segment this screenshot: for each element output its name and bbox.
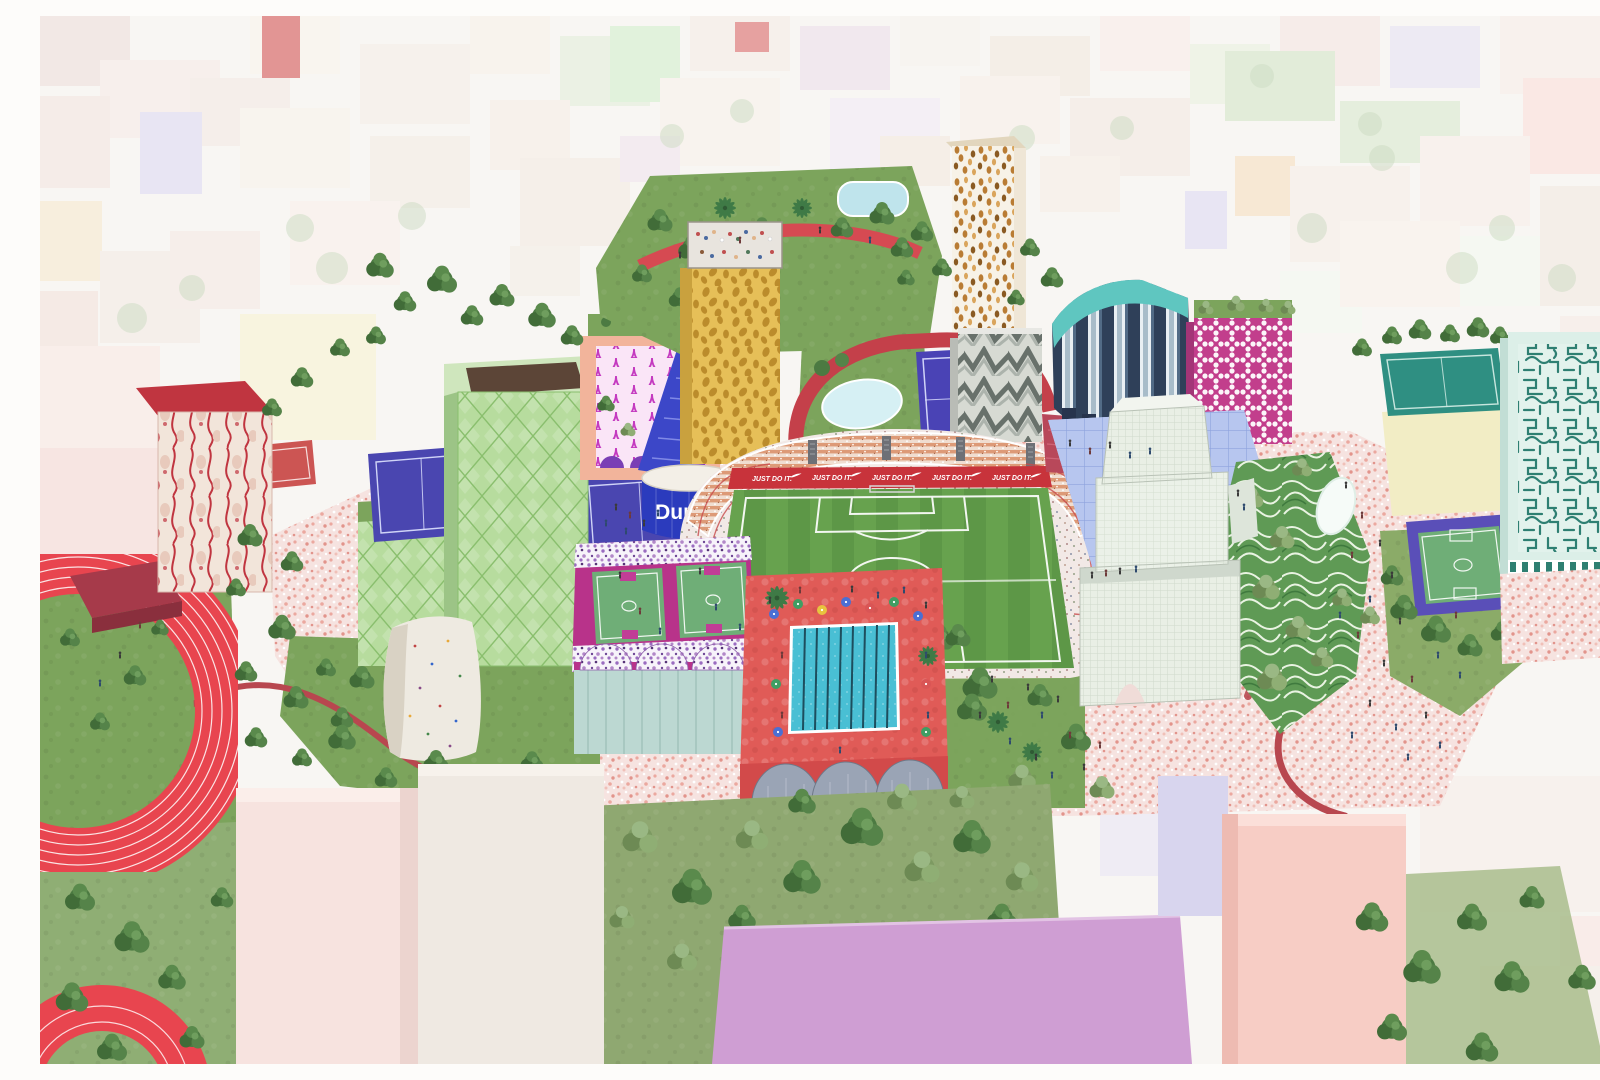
masterplan-rendering: Durrës — [40, 16, 1600, 1064]
cream-plaza — [1382, 406, 1512, 516]
rooftop-pool — [838, 182, 908, 216]
billboard-crowd-image — [688, 222, 782, 268]
ad-text: JUST DO IT. — [932, 475, 972, 482]
climbing-wall — [384, 616, 481, 761]
rooftop-courts-building — [572, 536, 754, 754]
side-terrace — [1228, 478, 1258, 544]
scalloped-awnings — [580, 644, 744, 670]
ad-text: JUST DO IT. — [872, 475, 912, 482]
ad-text: JUST DO IT. — [752, 476, 792, 483]
ad-text: JUST DO IT. — [812, 475, 852, 482]
leopard-billboard-tower — [680, 222, 782, 464]
glass-facade — [574, 670, 752, 754]
lap-pool — [788, 622, 900, 734]
ad-text: JUST DO IT. — [992, 475, 1032, 482]
foreground-lilac-roof — [712, 916, 1192, 1064]
foreground-buildings-left — [236, 764, 604, 1064]
marble-building — [950, 328, 1042, 442]
maze-facade-building — [1500, 332, 1600, 664]
